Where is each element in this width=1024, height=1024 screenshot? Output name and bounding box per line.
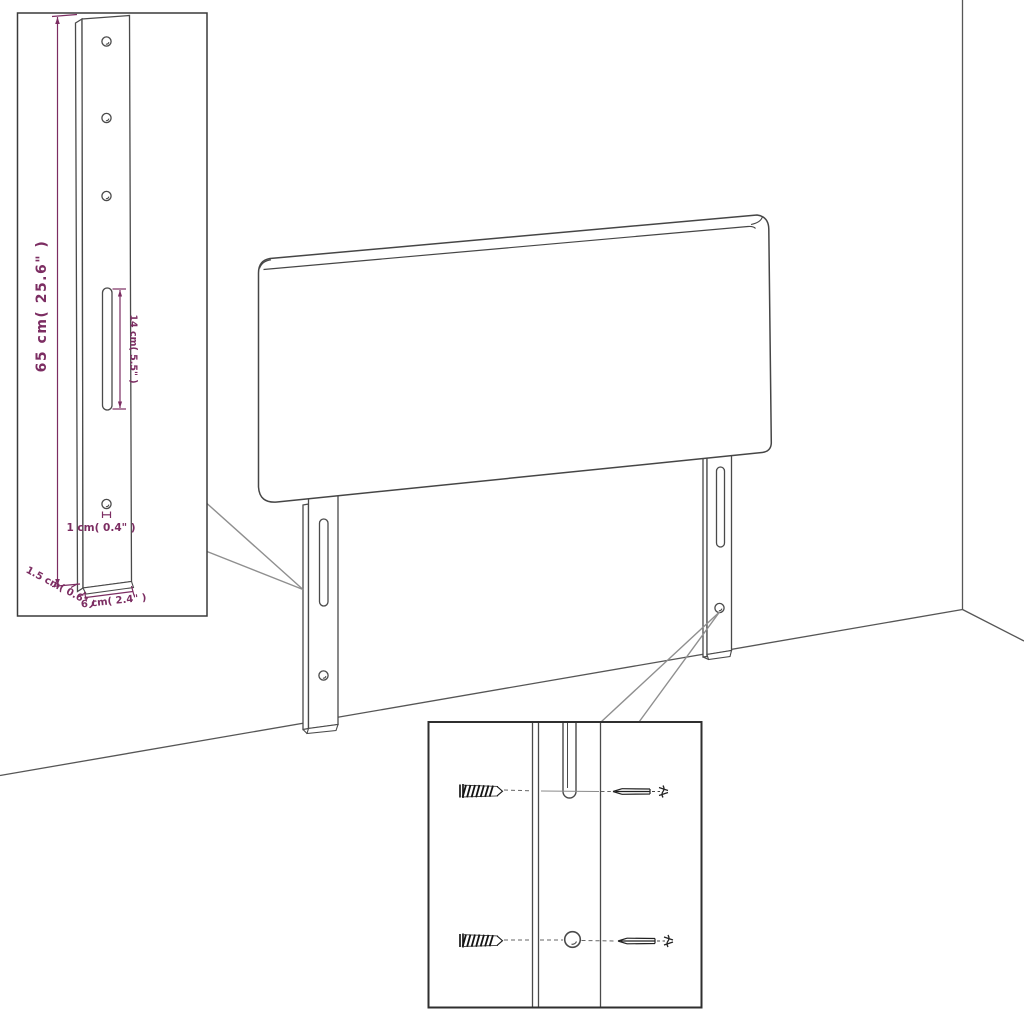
inset-leg-hole-3	[102, 191, 111, 200]
right-leg-hole	[715, 603, 724, 612]
inset2-hole	[565, 932, 581, 948]
diagram-canvas: 65 cm( 25.6" ) 14 cm( 5.5" ) 1 cm( 0.4" …	[0, 0, 1024, 1024]
leg-detail-inset: 65 cm( 25.6" ) 14 cm( 5.5" ) 1 cm( 0.4" …	[18, 13, 208, 616]
leader-bottom-inset-2	[639, 612, 720, 722]
inset-leg-hole-2	[102, 113, 111, 122]
dim-hole-label: 1 cm( 0.4" )	[66, 522, 135, 534]
inset-leg-bottom-hole	[102, 499, 111, 508]
mounting-detail-inset	[429, 722, 702, 1008]
dim-height-label: 65 cm( 25.6" )	[34, 240, 50, 373]
dash-across-top	[541, 791, 599, 792]
left-leg-front-face	[309, 475, 339, 729]
leader-lines	[207, 504, 720, 723]
left-leg-hole	[319, 671, 328, 680]
leader-top-inset-1	[207, 504, 303, 590]
inset-leg-hole-1	[102, 37, 111, 46]
dim-slot-label: 14 cm( 5.5" )	[128, 314, 139, 383]
headboard-panel	[259, 215, 772, 502]
right-leg	[703, 428, 732, 660]
left-leg	[303, 475, 338, 734]
floor-line-right	[963, 610, 1024, 642]
left-leg-side-face	[303, 504, 309, 730]
mounting-detail-inset-frame	[429, 722, 702, 1008]
leader-bottom-inset-1	[601, 612, 720, 722]
leader-top-inset-2	[207, 552, 303, 590]
panel-front-face	[259, 215, 772, 502]
